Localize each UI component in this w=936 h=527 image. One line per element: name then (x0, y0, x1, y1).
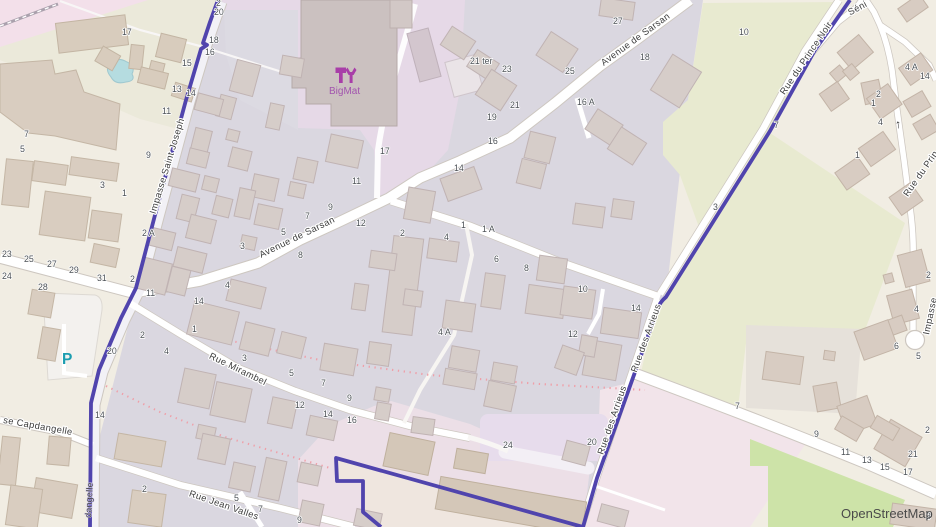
svg-text:27: 27 (47, 259, 57, 269)
svg-text:1: 1 (855, 150, 860, 160)
svg-text:4 A: 4 A (905, 62, 918, 72)
svg-text:16: 16 (488, 136, 498, 146)
svg-text:27: 27 (613, 16, 623, 26)
svg-text:5: 5 (234, 493, 239, 503)
svg-text:14: 14 (631, 303, 641, 313)
svg-text:7: 7 (735, 401, 740, 411)
svg-text:3: 3 (242, 353, 247, 363)
svg-text:11: 11 (841, 447, 850, 457)
svg-text:17: 17 (903, 467, 913, 477)
svg-text:7: 7 (24, 129, 29, 139)
svg-text:6: 6 (494, 254, 499, 264)
svg-text:1: 1 (192, 324, 197, 334)
svg-text:1 A: 1 A (482, 224, 495, 234)
svg-text:21: 21 (510, 100, 520, 110)
svg-text:15: 15 (182, 58, 192, 68)
svg-text:BigMat: BigMat (329, 86, 360, 97)
svg-text:7: 7 (774, 120, 779, 130)
svg-text:9: 9 (814, 429, 819, 439)
svg-text:2: 2 (130, 274, 135, 284)
svg-text:14: 14 (323, 409, 333, 419)
svg-text:14: 14 (186, 88, 196, 98)
svg-text:1: 1 (871, 98, 876, 108)
svg-text:4: 4 (164, 346, 169, 356)
svg-text:10: 10 (739, 27, 749, 37)
svg-text:20: 20 (587, 437, 597, 447)
svg-text:18: 18 (209, 35, 219, 45)
svg-text:16: 16 (205, 47, 215, 57)
svg-text:7: 7 (258, 504, 263, 514)
svg-text:12: 12 (356, 218, 366, 228)
svg-text:2: 2 (142, 484, 147, 494)
svg-text:9: 9 (347, 393, 352, 403)
svg-text:12: 12 (568, 329, 578, 339)
svg-text:P: P (62, 351, 72, 368)
svg-text:19: 19 (487, 112, 497, 122)
svg-text:31: 31 (97, 273, 107, 283)
svg-text:14: 14 (920, 71, 930, 81)
svg-text:2: 2 (926, 270, 931, 280)
svg-text:7: 7 (305, 211, 310, 221)
svg-text:2: 2 (140, 330, 145, 340)
svg-text:5: 5 (289, 368, 294, 378)
svg-text:OpenStreetMap: OpenStreetMap (841, 506, 933, 521)
svg-text:21: 21 (908, 449, 918, 459)
svg-text:23: 23 (2, 249, 12, 259)
svg-text:25: 25 (24, 254, 34, 264)
svg-text:4 A: 4 A (438, 327, 451, 337)
svg-text:28: 28 (38, 282, 48, 292)
svg-text:2 A: 2 A (142, 228, 155, 238)
svg-text:11: 11 (352, 176, 361, 186)
svg-text:10: 10 (578, 284, 588, 294)
svg-text:8: 8 (524, 263, 529, 273)
svg-text:13: 13 (862, 455, 872, 465)
svg-text:20: 20 (214, 7, 224, 17)
svg-text:2: 2 (925, 425, 930, 435)
svg-text:4: 4 (444, 232, 449, 242)
svg-text:4: 4 (878, 117, 883, 127)
svg-text:12: 12 (295, 400, 305, 410)
svg-text:5: 5 (281, 227, 286, 237)
svg-text:16: 16 (347, 415, 357, 425)
svg-text:14: 14 (454, 163, 464, 173)
svg-text:16 A: 16 A (577, 97, 595, 107)
svg-text:1: 1 (461, 220, 466, 230)
svg-text:14: 14 (95, 410, 105, 420)
svg-text:29: 29 (69, 265, 79, 275)
svg-text:23: 23 (502, 64, 512, 74)
svg-text:24: 24 (503, 440, 513, 450)
svg-text:1: 1 (122, 188, 127, 198)
svg-text:9: 9 (297, 515, 302, 525)
svg-text:2: 2 (400, 228, 405, 238)
svg-text:24: 24 (2, 271, 12, 281)
svg-text:3: 3 (100, 180, 105, 190)
svg-text:20: 20 (107, 346, 117, 356)
svg-text:15: 15 (880, 462, 890, 472)
svg-text:8: 8 (298, 250, 303, 260)
svg-text:13: 13 (172, 84, 182, 94)
svg-text:14: 14 (194, 296, 204, 306)
svg-text:5: 5 (20, 144, 25, 154)
svg-text:7: 7 (321, 378, 326, 388)
svg-text:6: 6 (894, 341, 899, 351)
svg-text:9: 9 (328, 202, 333, 212)
svg-text:3: 3 (713, 202, 718, 212)
svg-text:4: 4 (914, 304, 919, 314)
svg-text:17: 17 (122, 27, 132, 37)
svg-text:4: 4 (225, 280, 230, 290)
svg-text:3: 3 (240, 241, 245, 251)
svg-text:2: 2 (876, 89, 881, 99)
svg-text:21 ter: 21 ter (470, 56, 493, 66)
svg-text:17: 17 (380, 146, 390, 156)
svg-text:11: 11 (146, 288, 155, 298)
svg-text:11: 11 (162, 106, 171, 116)
svg-text:9: 9 (146, 150, 151, 160)
svg-text:dangelle: dangelle (83, 482, 95, 518)
svg-text:25: 25 (565, 66, 575, 76)
svg-text:5: 5 (916, 351, 921, 361)
svg-text:18: 18 (640, 52, 650, 62)
